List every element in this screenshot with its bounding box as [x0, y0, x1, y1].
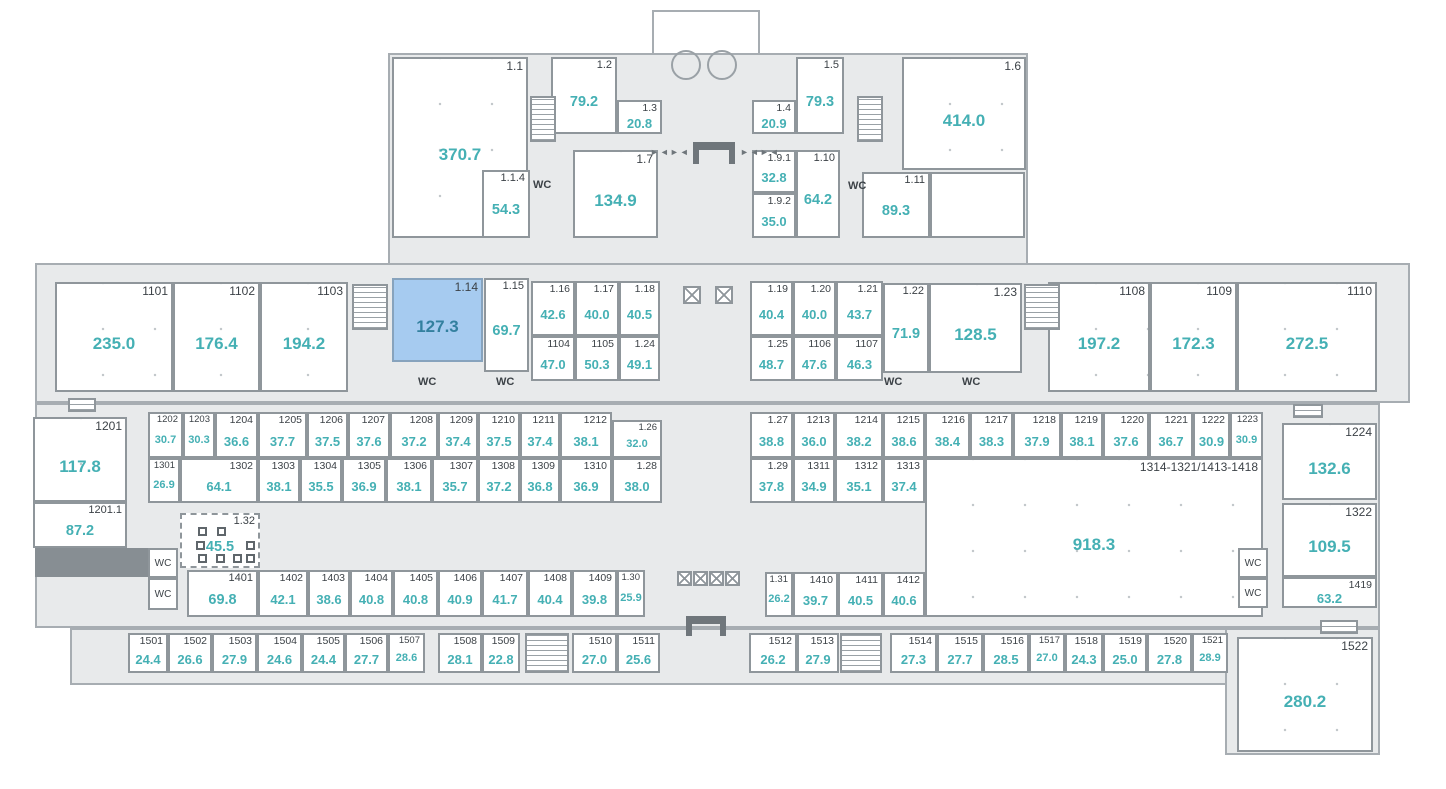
room-number: 1219 [1063, 414, 1101, 426]
room-area: 109.5 [1284, 519, 1375, 575]
room-1401[interactable]: 140169.8 [187, 570, 258, 617]
room-1311[interactable]: 131134.9 [793, 458, 835, 503]
room-area: 41.7 [484, 584, 526, 615]
room-number: 1308 [480, 460, 518, 472]
solid-block [35, 548, 148, 577]
room-number: 1224 [1284, 425, 1375, 439]
room-number: 1508 [440, 635, 480, 647]
room-1522[interactable]: 1522280.2 [1237, 637, 1373, 752]
room-1313[interactable]: 131337.4 [883, 458, 925, 503]
room-1307[interactable]: 130735.7 [432, 458, 478, 503]
room-area: 36.0 [795, 426, 833, 456]
room-area: 117.8 [35, 433, 125, 500]
room-1505[interactable]: 150524.4 [302, 633, 345, 673]
room-area: 26.6 [170, 647, 210, 671]
room-1312[interactable]: 131235.1 [835, 458, 883, 503]
wc-room: WC [148, 548, 178, 578]
room-number: 1401 [189, 572, 256, 585]
room-1110[interactable]: 1110272.5 [1237, 282, 1377, 392]
room-area: 35.7 [434, 472, 476, 501]
workstation-icon [233, 554, 242, 563]
room-1308[interactable]: 130837.2 [478, 458, 520, 503]
room-number: 1201 [35, 419, 125, 433]
room-area: 38.6 [885, 426, 923, 456]
room-number: 1519 [1105, 635, 1145, 647]
room-number: 1518 [1067, 635, 1101, 647]
room-number: 1408 [530, 572, 570, 584]
room-area: 918.3 [927, 474, 1261, 615]
column-icon [707, 50, 737, 80]
room-area: 69.8 [189, 585, 256, 615]
room-1.29[interactable]: 1.2937.8 [750, 458, 793, 503]
room-number: 1.19 [752, 283, 791, 295]
room-number: 1217 [972, 414, 1011, 426]
room-1.31[interactable]: 1.3126.2 [765, 572, 793, 617]
room-1409[interactable]: 140939.8 [572, 570, 617, 617]
room-number: 1512 [751, 635, 795, 647]
room-1223[interactable]: 122330.9 [1230, 412, 1263, 458]
room-1.22[interactable]: 1.2271.9 [883, 283, 929, 373]
room-area: 38.1 [260, 472, 298, 501]
room-1507[interactable]: 150728.6 [388, 633, 425, 673]
room-area: 27.3 [892, 647, 935, 671]
room-area: 36.8 [522, 472, 558, 501]
room-1502[interactable]: 150226.6 [168, 633, 212, 673]
room-area: 27.7 [939, 647, 981, 671]
room-1.6[interactable]: 1.6414.0 [902, 57, 1026, 170]
stairs-icon [840, 633, 882, 673]
room-1410[interactable]: 141039.7 [793, 572, 838, 617]
room-number: 1409 [574, 572, 615, 584]
room-number: 1.14 [394, 280, 481, 294]
room-number: 1302 [182, 460, 256, 472]
column-icon [671, 50, 701, 80]
room-1219[interactable]: 121938.1 [1061, 412, 1103, 458]
room-area: 89.3 [864, 187, 928, 236]
room-1222[interactable]: 122230.9 [1193, 412, 1230, 458]
room-area: 63.2 [1284, 591, 1375, 606]
room-1206[interactable]: 120637.5 [307, 412, 348, 458]
room-1302[interactable]: 130264.1 [180, 458, 258, 503]
room-number: 1.1 [394, 59, 526, 73]
room-1407[interactable]: 140741.7 [482, 570, 528, 617]
room-1.5[interactable]: 1.579.3 [796, 57, 844, 134]
room-area: 197.2 [1050, 298, 1148, 390]
elevator-icon [715, 286, 733, 304]
room-1.26[interactable]: 1.2632.0 [612, 420, 662, 458]
room-number: 1411 [840, 574, 881, 586]
room-1518[interactable]: 151824.3 [1065, 633, 1103, 673]
room-1.7[interactable]: 1.7134.9 [573, 150, 658, 238]
room-area: 37.9 [1015, 426, 1059, 456]
room-number: 1.22 [885, 285, 927, 298]
room-area: 37.2 [392, 426, 436, 456]
room-1501[interactable]: 150124.4 [128, 633, 168, 673]
room-1220[interactable]: 122037.6 [1103, 412, 1149, 458]
room-number: 1204 [217, 414, 256, 426]
room-area: 134.9 [575, 166, 656, 236]
room-1412[interactable]: 141240.6 [883, 572, 925, 617]
room-area: 42.1 [260, 584, 306, 615]
room-number: 1212 [562, 414, 610, 426]
room-1403[interactable]: 140338.6 [308, 570, 350, 617]
room-number: 1314-1321/1413-1418 [927, 460, 1261, 474]
room-1520[interactable]: 152027.8 [1147, 633, 1192, 673]
room-1304[interactable]: 130435.5 [300, 458, 342, 503]
room-number: 1306 [388, 460, 430, 472]
room-1511[interactable]: 151125.6 [617, 633, 660, 673]
room-area: 40.8 [395, 584, 436, 615]
room-1515[interactable]: 151527.7 [937, 633, 983, 673]
room-1512[interactable]: 151226.2 [749, 633, 797, 673]
door-icon: ►◄►◄ [740, 148, 780, 157]
room-number: 1509 [484, 635, 518, 647]
room-area: 79.2 [553, 72, 615, 132]
room-area: 38.0 [614, 472, 660, 501]
wc-room: WC [1238, 548, 1268, 578]
room-1201.1[interactable]: 1201.187.2 [33, 502, 127, 548]
room-number: 1502 [170, 635, 210, 647]
room-1103[interactable]: 1103194.2 [260, 282, 348, 392]
room-number: 1403 [310, 572, 348, 584]
room-number: 1510 [574, 635, 615, 647]
workstation-icon [198, 527, 207, 536]
room-area: 40.6 [885, 586, 923, 615]
room-1.4[interactable]: 1.420.9 [752, 100, 796, 134]
room-area: 37.2 [480, 472, 518, 501]
room-area: 24.6 [259, 647, 300, 671]
room-1.1.4[interactable]: 1.1.454.3 [482, 170, 530, 238]
room-1.30[interactable]: 1.3025.9 [617, 570, 645, 617]
room-1506[interactable]: 150627.7 [345, 633, 388, 673]
room-area: 32.8 [754, 164, 794, 191]
room-number: 1307 [434, 460, 476, 472]
stairs-icon [525, 633, 569, 673]
room-number: 1222 [1195, 414, 1228, 426]
room-1.21[interactable]: 1.2143.7 [836, 281, 883, 336]
room-number: 1507 [390, 635, 423, 646]
room-1517[interactable]: 151727.0 [1029, 633, 1065, 673]
room-area: 27.9 [214, 647, 255, 671]
stairs-icon [352, 284, 388, 330]
room-1205[interactable]: 120537.7 [258, 412, 307, 458]
room-area: 40.8 [352, 584, 391, 615]
room-1109[interactable]: 1109172.3 [1150, 282, 1237, 392]
room-1301[interactable]: 130126.9 [148, 458, 180, 503]
room-1503[interactable]: 150327.9 [212, 633, 257, 673]
room-1203[interactable]: 120330.3 [183, 412, 215, 458]
room-number: 1310 [562, 460, 610, 472]
room-1322[interactable]: 1322109.5 [1282, 503, 1377, 577]
room-1.9.2[interactable]: 1.9.235.0 [752, 193, 796, 238]
room-1.2[interactable]: 1.279.2 [551, 57, 617, 134]
room-area: 24.3 [1067, 647, 1101, 671]
room-1213[interactable]: 121336.0 [793, 412, 835, 458]
room-area: 176.4 [175, 298, 258, 390]
room-1509[interactable]: 150922.8 [482, 633, 520, 673]
room-area: 414.0 [904, 73, 1024, 168]
room-1207[interactable]: 120737.6 [348, 412, 390, 458]
room-1201[interactable]: 1201117.8 [33, 417, 127, 502]
stairs-icon [1024, 284, 1060, 330]
room-area: 34.9 [795, 472, 833, 501]
room-number: 1513 [799, 635, 837, 647]
room-1224[interactable]: 1224132.6 [1282, 423, 1377, 500]
room-1314-1321/1413-1418[interactable]: 1314-1321/1413-1418918.3 [925, 458, 1263, 617]
room-area: 43.7 [838, 295, 881, 334]
room-1309[interactable]: 130936.8 [520, 458, 560, 503]
room-1.16[interactable]: 1.1642.6 [531, 281, 575, 336]
elevator-icon [725, 571, 740, 586]
room-number: 1.26 [614, 422, 660, 433]
room-number: 1213 [795, 414, 833, 426]
room-1521[interactable]: 152128.9 [1192, 633, 1228, 673]
room-area: 37.5 [480, 426, 518, 456]
room-1306[interactable]: 130638.1 [386, 458, 432, 503]
room-area: 38.3 [972, 426, 1011, 456]
room-area: 46.3 [838, 350, 881, 379]
elevator-icon [677, 571, 692, 586]
room-1.11[interactable]: 1.1189.3 [862, 172, 930, 238]
room-1513[interactable]: 151327.9 [797, 633, 839, 673]
stairs-icon [68, 398, 96, 412]
room-area: 27.9 [799, 647, 837, 671]
workstation-icon [246, 541, 255, 550]
room-1204[interactable]: 120436.6 [215, 412, 258, 458]
room-number: 1.10 [798, 152, 838, 165]
room-area: 64.1 [182, 472, 256, 501]
room-number: 1412 [885, 574, 923, 586]
room-number: 1102 [175, 284, 258, 298]
room-number: 1.24 [621, 338, 658, 350]
elevator-icon [709, 571, 724, 586]
room-number: 1521 [1194, 635, 1226, 646]
room-area: 36.7 [1151, 426, 1191, 456]
room-area: 24.4 [130, 647, 166, 671]
room-area: 25.0 [1105, 647, 1145, 671]
room-1.19[interactable]: 1.1940.4 [750, 281, 793, 336]
room-number: 1.31 [767, 574, 791, 585]
room-1106[interactable]: 110647.6 [793, 336, 836, 381]
room-1404[interactable]: 140440.8 [350, 570, 393, 617]
room-1107[interactable]: 110746.3 [836, 336, 883, 381]
room-number: 1101 [57, 284, 171, 298]
room-1405[interactable]: 140540.8 [393, 570, 438, 617]
wc-room: WC [1238, 578, 1268, 608]
room-1217[interactable]: 121738.3 [970, 412, 1013, 458]
room-area: 40.9 [440, 584, 480, 615]
room-1402[interactable]: 140242.1 [258, 570, 308, 617]
room-number: 1505 [304, 635, 343, 647]
room-1519[interactable]: 151925.0 [1103, 633, 1147, 673]
room-1101[interactable]: 1101235.0 [55, 282, 173, 392]
room-1514[interactable]: 151427.3 [890, 633, 937, 673]
room-area: 38.1 [1063, 426, 1101, 456]
room-area: 38.8 [752, 426, 791, 456]
floor-plan: 1.1370.71.279.21.320.81.420.91.579.31.64… [0, 0, 1446, 789]
room-number: 1105 [577, 338, 617, 350]
room-number: 1106 [795, 338, 834, 350]
room-1214[interactable]: 121438.2 [835, 412, 883, 458]
room-1102[interactable]: 1102176.4 [173, 282, 260, 392]
room-number: 1511 [619, 635, 658, 647]
room-1209[interactable]: 120937.4 [438, 412, 478, 458]
room-number: 1309 [522, 460, 558, 472]
room-number: 1503 [214, 635, 255, 647]
room-area: 39.8 [574, 584, 615, 615]
room-1.25[interactable]: 1.2548.7 [750, 336, 793, 381]
room-number: 1419 [1284, 579, 1375, 591]
entrance-icon [693, 142, 735, 164]
room-area: 71.9 [885, 298, 927, 371]
room-number: 1.28 [614, 460, 660, 472]
elevator-icon [693, 571, 708, 586]
room-area: 40.5 [840, 586, 881, 615]
room-1504[interactable]: 150424.6 [257, 633, 302, 673]
room-number: 1301 [150, 460, 178, 471]
room-1216[interactable]: 121638.4 [925, 412, 970, 458]
room-area: 37.7 [260, 426, 305, 456]
room-1419[interactable]: 141963.2 [1282, 577, 1377, 608]
room-number: 1303 [260, 460, 298, 472]
room-area: 36.6 [217, 426, 256, 456]
room-1.10[interactable]: 1.1064.2 [796, 150, 840, 238]
room-area: 38.1 [388, 472, 430, 501]
room-1.15[interactable]: 1.1569.7 [484, 278, 529, 372]
room-1208[interactable]: 120837.2 [390, 412, 438, 458]
room-area: 79.3 [798, 72, 842, 132]
wc-room: WC [148, 578, 178, 610]
workstation-icon [246, 554, 255, 563]
room-1218[interactable]: 121837.9 [1013, 412, 1061, 458]
room-1516[interactable]: 151628.5 [983, 633, 1029, 673]
room-1104[interactable]: 110447.0 [531, 336, 575, 381]
room-1211[interactable]: 121137.4 [520, 412, 560, 458]
room-area: 132.6 [1284, 439, 1375, 498]
room-number: 1203 [185, 414, 213, 425]
room-1202[interactable]: 120230.7 [148, 412, 183, 458]
room-number: 1216 [927, 414, 968, 426]
room-area: 27.0 [1031, 646, 1063, 671]
room-number: 1402 [260, 572, 306, 584]
room-number: 1.16 [533, 283, 573, 295]
room-area: 26.2 [767, 585, 791, 615]
room-number: 1.32 [182, 515, 258, 528]
room-1215[interactable]: 121538.6 [883, 412, 925, 458]
room-area: 26.9 [150, 471, 178, 501]
room-1406[interactable]: 140640.9 [438, 570, 482, 617]
room-1105[interactable]: 110550.3 [575, 336, 619, 381]
room-1.3[interactable]: 1.320.8 [617, 100, 662, 134]
door-icon: ►◄►◄ [650, 148, 690, 157]
room-1.18[interactable]: 1.1840.5 [619, 281, 660, 336]
room-number: 1311 [795, 460, 833, 472]
room-area: 28.1 [440, 647, 480, 671]
room-1108[interactable]: 1108197.2 [1048, 282, 1150, 392]
room-number: 1205 [260, 414, 305, 426]
room-area: 25.9 [619, 583, 643, 615]
stairs-icon [1293, 404, 1323, 418]
room-area: 280.2 [1239, 653, 1371, 750]
room-area: 35.0 [754, 207, 794, 236]
room-1221[interactable]: 122136.7 [1149, 412, 1193, 458]
room-1508[interactable]: 150828.1 [438, 633, 482, 673]
room-area: 40.0 [577, 295, 617, 334]
room-1210[interactable]: 121037.5 [478, 412, 520, 458]
room-number: 1406 [440, 572, 480, 584]
room-number: 1221 [1151, 414, 1191, 426]
room-1.17[interactable]: 1.1740.0 [575, 281, 619, 336]
room-1303[interactable]: 130338.1 [258, 458, 300, 503]
stairs-icon [857, 96, 883, 142]
room-area: 172.3 [1152, 298, 1235, 390]
room-number: 1515 [939, 635, 981, 647]
room-1212[interactable]: 121238.1 [560, 412, 612, 458]
room-area: 27.8 [1149, 647, 1190, 671]
room-number: 1.29 [752, 460, 791, 472]
room-number: 1202 [150, 414, 181, 425]
room-number: 1322 [1284, 505, 1375, 519]
room-1.27[interactable]: 1.2738.8 [750, 412, 793, 458]
room-area: 54.3 [484, 185, 528, 236]
room-number: 1.20 [795, 283, 834, 295]
elevator-icon [683, 286, 701, 304]
room-number: 1109 [1152, 284, 1235, 298]
room-1.14[interactable]: 1.14127.3 [392, 278, 483, 362]
room-area: 272.5 [1239, 298, 1375, 390]
room-1411[interactable]: 141140.5 [838, 572, 883, 617]
room-1408[interactable]: 140840.4 [528, 570, 572, 617]
room-area: 50.3 [577, 350, 617, 379]
room-area: 26.2 [751, 647, 795, 671]
room-area: 235.0 [57, 298, 171, 390]
room-area: 32.0 [614, 433, 660, 456]
room-area: 87.2 [35, 517, 125, 546]
room-number: 1520 [1149, 635, 1190, 647]
building-outline [652, 10, 760, 55]
room-1.28[interactable]: 1.2838.0 [612, 458, 662, 503]
room-number: 1214 [837, 414, 881, 426]
stairs-icon [1320, 620, 1358, 634]
room-area: 69.7 [486, 293, 527, 370]
room-1305[interactable]: 130536.9 [342, 458, 386, 503]
room-area: 38.2 [837, 426, 881, 456]
room-area: 30.9 [1195, 426, 1228, 456]
room-number: 1223 [1232, 414, 1261, 425]
room-number: 1218 [1015, 414, 1059, 426]
room-number: 1215 [885, 414, 923, 426]
room-number: 1504 [259, 635, 300, 647]
room-area: 40.4 [530, 584, 570, 615]
room-1310[interactable]: 131036.9 [560, 458, 612, 503]
wc-label: WC [962, 376, 980, 388]
room-area: 28.9 [1194, 646, 1226, 671]
room-area: 35.5 [302, 472, 340, 501]
room-area: 127.3 [394, 294, 481, 360]
room-1.23[interactable]: 1.23128.5 [929, 283, 1022, 373]
room-number: 1.7 [575, 152, 656, 166]
room-1.24[interactable]: 1.2449.1 [619, 336, 660, 381]
room-area: 37.4 [522, 426, 558, 456]
room-number: 1208 [392, 414, 436, 426]
room-1.20[interactable]: 1.2040.0 [793, 281, 836, 336]
room-number: 1312 [837, 460, 881, 472]
room-number: 1.6 [904, 59, 1024, 73]
room-number: 1.4 [754, 102, 794, 114]
room-number: 1220 [1105, 414, 1147, 426]
room-number: 1.23 [931, 285, 1020, 299]
room-1510[interactable]: 151027.0 [572, 633, 617, 673]
